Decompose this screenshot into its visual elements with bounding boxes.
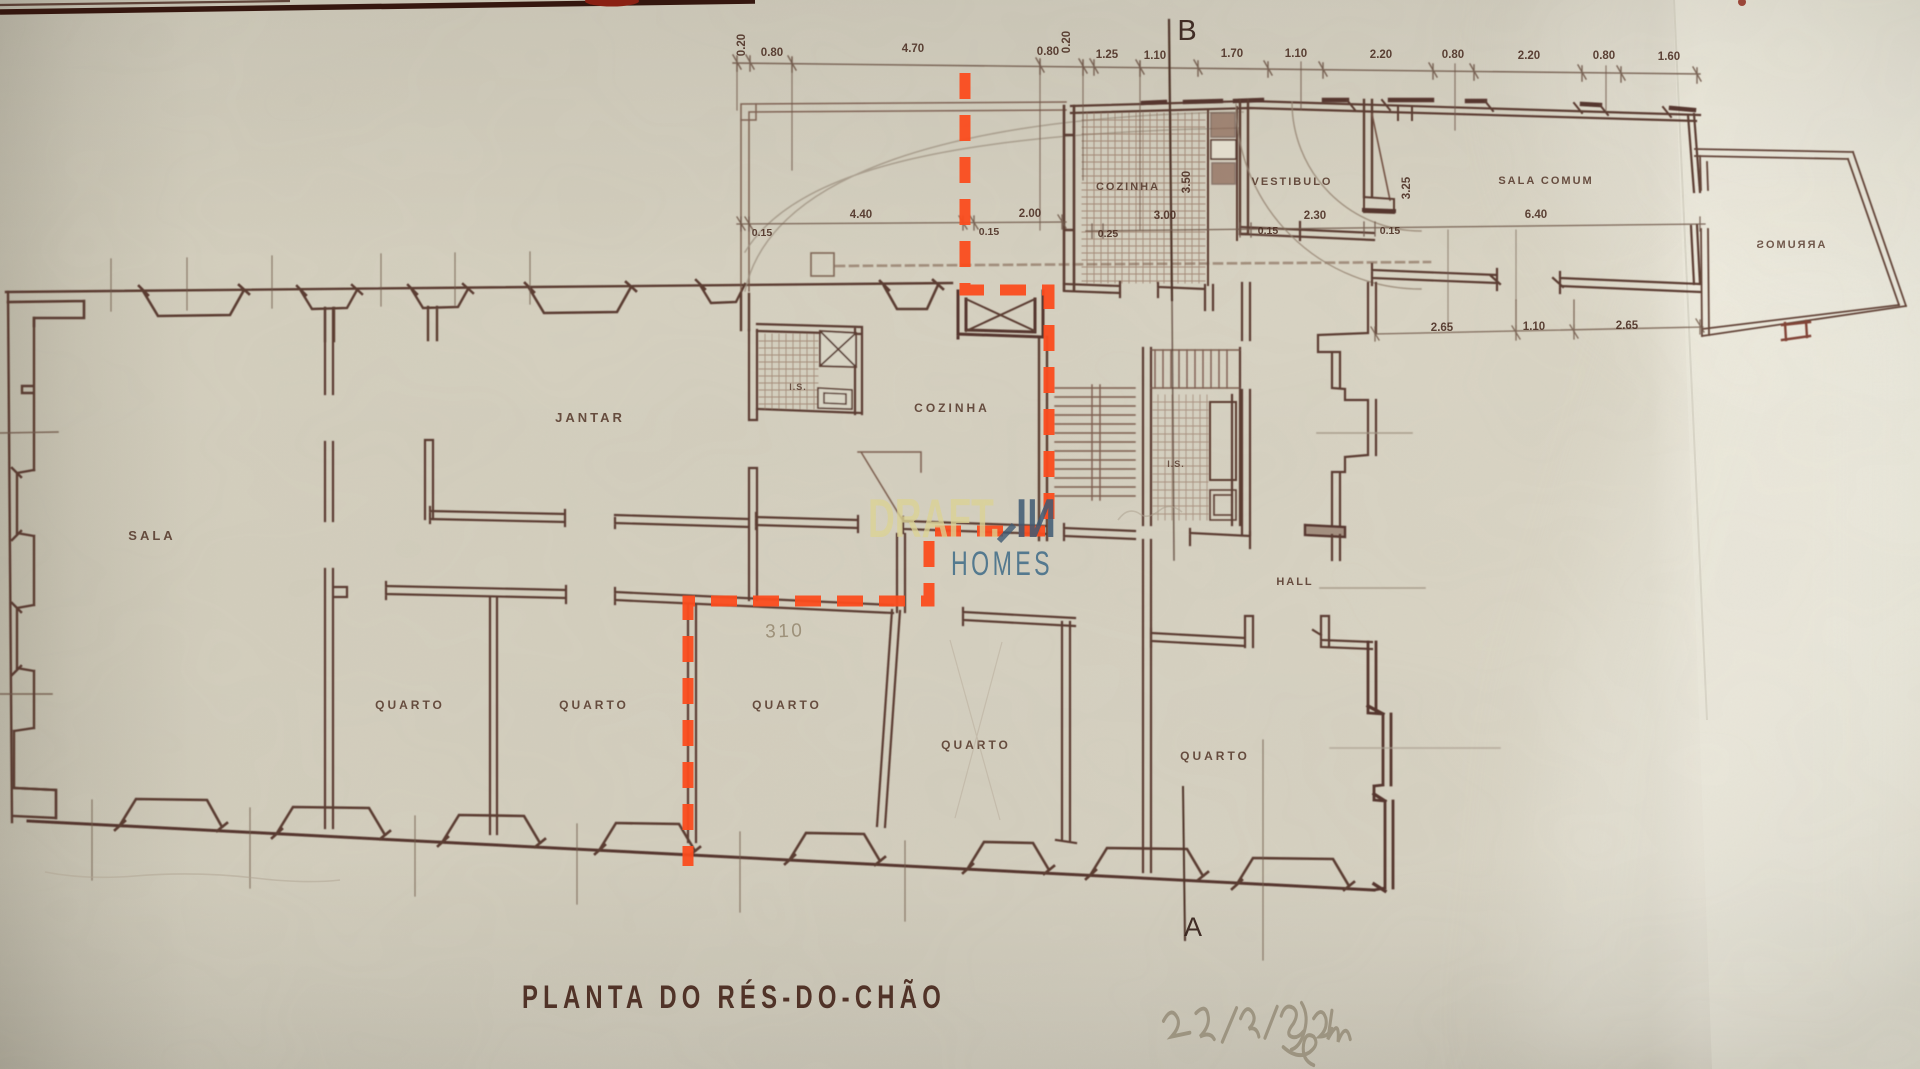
svg-text:3.00: 3.00: [1154, 210, 1176, 222]
svg-text:COZINHA: COZINHA: [1096, 181, 1160, 193]
svg-text:2.65: 2.65: [1431, 322, 1454, 334]
svg-text:I.S.: I.S.: [789, 382, 807, 392]
svg-text:0.15: 0.15: [1258, 225, 1279, 237]
svg-text:0.15: 0.15: [752, 227, 773, 239]
svg-text:0.80: 0.80: [761, 47, 783, 59]
svg-text:0.15: 0.15: [979, 226, 1000, 238]
svg-text:HALL: HALL: [1276, 576, 1313, 588]
svg-text:COZINHA: COZINHA: [914, 401, 990, 415]
svg-text:PLANTA DO RÉS-DO-CHÃO: PLANTA DO RÉS-DO-CHÃO: [522, 979, 946, 1015]
svg-text:1.10: 1.10: [1144, 50, 1166, 62]
svg-text:SALA COMUM: SALA COMUM: [1498, 175, 1593, 187]
svg-text:QUARTO: QUARTO: [375, 698, 445, 712]
svg-text:DRAFT.: DRAFT.: [868, 487, 1000, 549]
svg-text:B: B: [1177, 15, 1196, 47]
svg-text:0.20: 0.20: [736, 34, 748, 56]
svg-text:3.25: 3.25: [1401, 176, 1413, 199]
svg-text:ARRUMOS: ARRUMOS: [1755, 239, 1826, 251]
svg-text:4.40: 4.40: [850, 209, 872, 221]
svg-text:2.65: 2.65: [1616, 320, 1639, 332]
svg-text:6.40: 6.40: [1525, 209, 1547, 221]
svg-text:4.70: 4.70: [902, 43, 924, 55]
svg-text:HOMES: HOMES: [951, 545, 1053, 583]
svg-text:1.70: 1.70: [1221, 48, 1243, 60]
svg-text:0.25: 0.25: [1098, 228, 1119, 240]
svg-text:IИ: IИ: [1016, 487, 1056, 549]
svg-text:1.10: 1.10: [1523, 321, 1545, 333]
svg-text:QUARTO: QUARTO: [752, 698, 822, 712]
svg-text:310: 310: [765, 620, 805, 642]
svg-text:2.30: 2.30: [1304, 210, 1326, 222]
svg-text:I.S.: I.S.: [1167, 459, 1185, 469]
svg-text:A: A: [1184, 912, 1202, 942]
svg-text:2.00: 2.00: [1019, 208, 1041, 220]
svg-text:JANTAR: JANTAR: [555, 410, 625, 425]
svg-text:0.15: 0.15: [1380, 225, 1401, 237]
svg-text:SALA: SALA: [128, 528, 175, 543]
svg-text:1.60: 1.60: [1658, 51, 1680, 63]
svg-text:0.80: 0.80: [1442, 49, 1464, 61]
svg-text:1.10: 1.10: [1285, 48, 1307, 60]
svg-text:QUARTO: QUARTO: [559, 698, 629, 712]
svg-text:VESTIBULO: VESTIBULO: [1252, 176, 1333, 188]
svg-text:2.20: 2.20: [1518, 50, 1540, 62]
svg-text:2.20: 2.20: [1370, 49, 1392, 61]
svg-text:1.25: 1.25: [1096, 49, 1119, 61]
svg-text:3.50: 3.50: [1181, 171, 1193, 193]
svg-text:0.20: 0.20: [1061, 31, 1073, 53]
svg-text:QUARTO: QUARTO: [1180, 749, 1250, 763]
svg-text:0.80: 0.80: [1593, 50, 1615, 62]
svg-text:0.80: 0.80: [1037, 46, 1059, 58]
